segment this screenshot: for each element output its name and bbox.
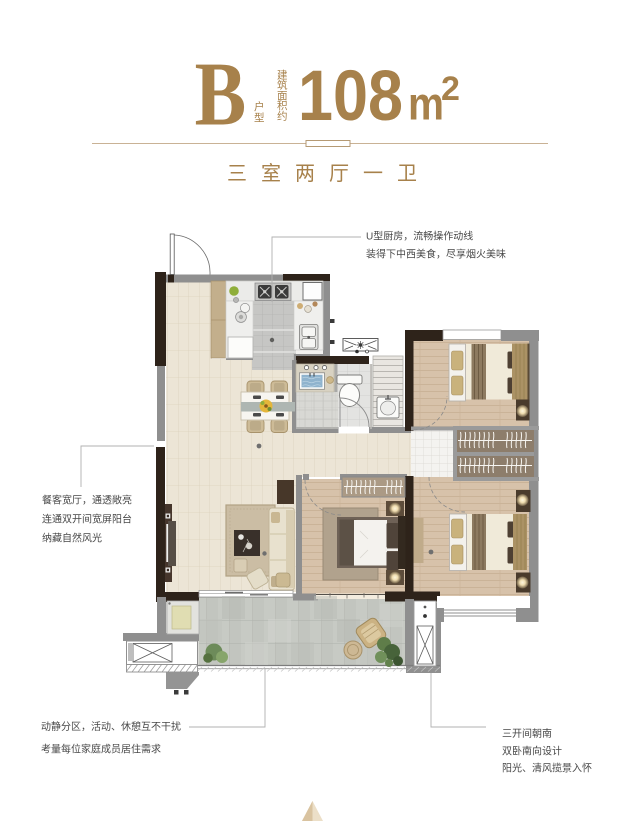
svg-text:双卧南向设计: 双卧南向设计 <box>502 745 562 758</box>
svg-text:108: 108 <box>298 57 403 136</box>
svg-text:三开间朝南: 三开间朝南 <box>502 727 552 740</box>
svg-text:户型: 户型 <box>254 100 265 124</box>
svg-text:动静分区，活动、休憩互不干扰: 动静分区，活动、休憩互不干扰 <box>41 720 181 733</box>
svg-text:U型厨房，流畅操作动线: U型厨房，流畅操作动线 <box>366 230 473 243</box>
svg-text:B: B <box>195 45 247 145</box>
svg-text:连通双开间宽屏阳台: 连通双开间宽屏阳台 <box>42 513 132 526</box>
svg-text:纳藏自然风光: 纳藏自然风光 <box>42 532 102 545</box>
svg-text:2: 2 <box>441 70 460 108</box>
svg-text:阳光、清风揽景入怀: 阳光、清风揽景入怀 <box>502 762 592 775</box>
svg-text:三室两厅一卫: 三室两厅一卫 <box>227 162 431 185</box>
svg-text:餐客宽厅，通透敞亮: 餐客宽厅，通透敞亮 <box>42 494 132 507</box>
svg-text:考量每位家庭成员居住需求: 考量每位家庭成员居住需求 <box>41 743 161 756</box>
svg-text:装得下中西美食，尽享烟火美味: 装得下中西美食，尽享烟火美味 <box>366 248 506 261</box>
svg-text:m: m <box>408 78 444 130</box>
svg-text:建筑面积约: 建筑面积约 <box>277 69 288 123</box>
